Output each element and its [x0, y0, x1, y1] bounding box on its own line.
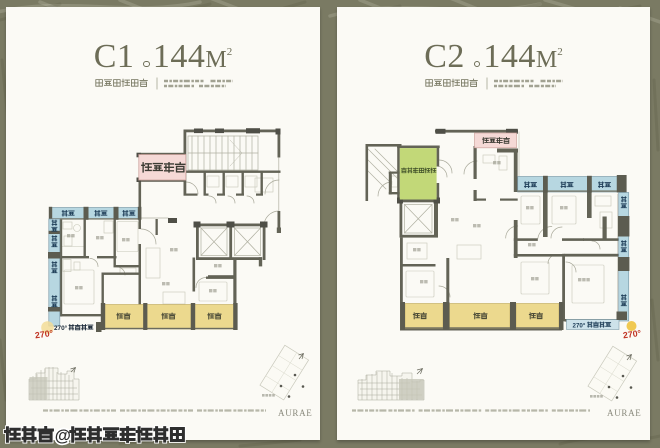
svg-text:@: @	[55, 427, 71, 445]
